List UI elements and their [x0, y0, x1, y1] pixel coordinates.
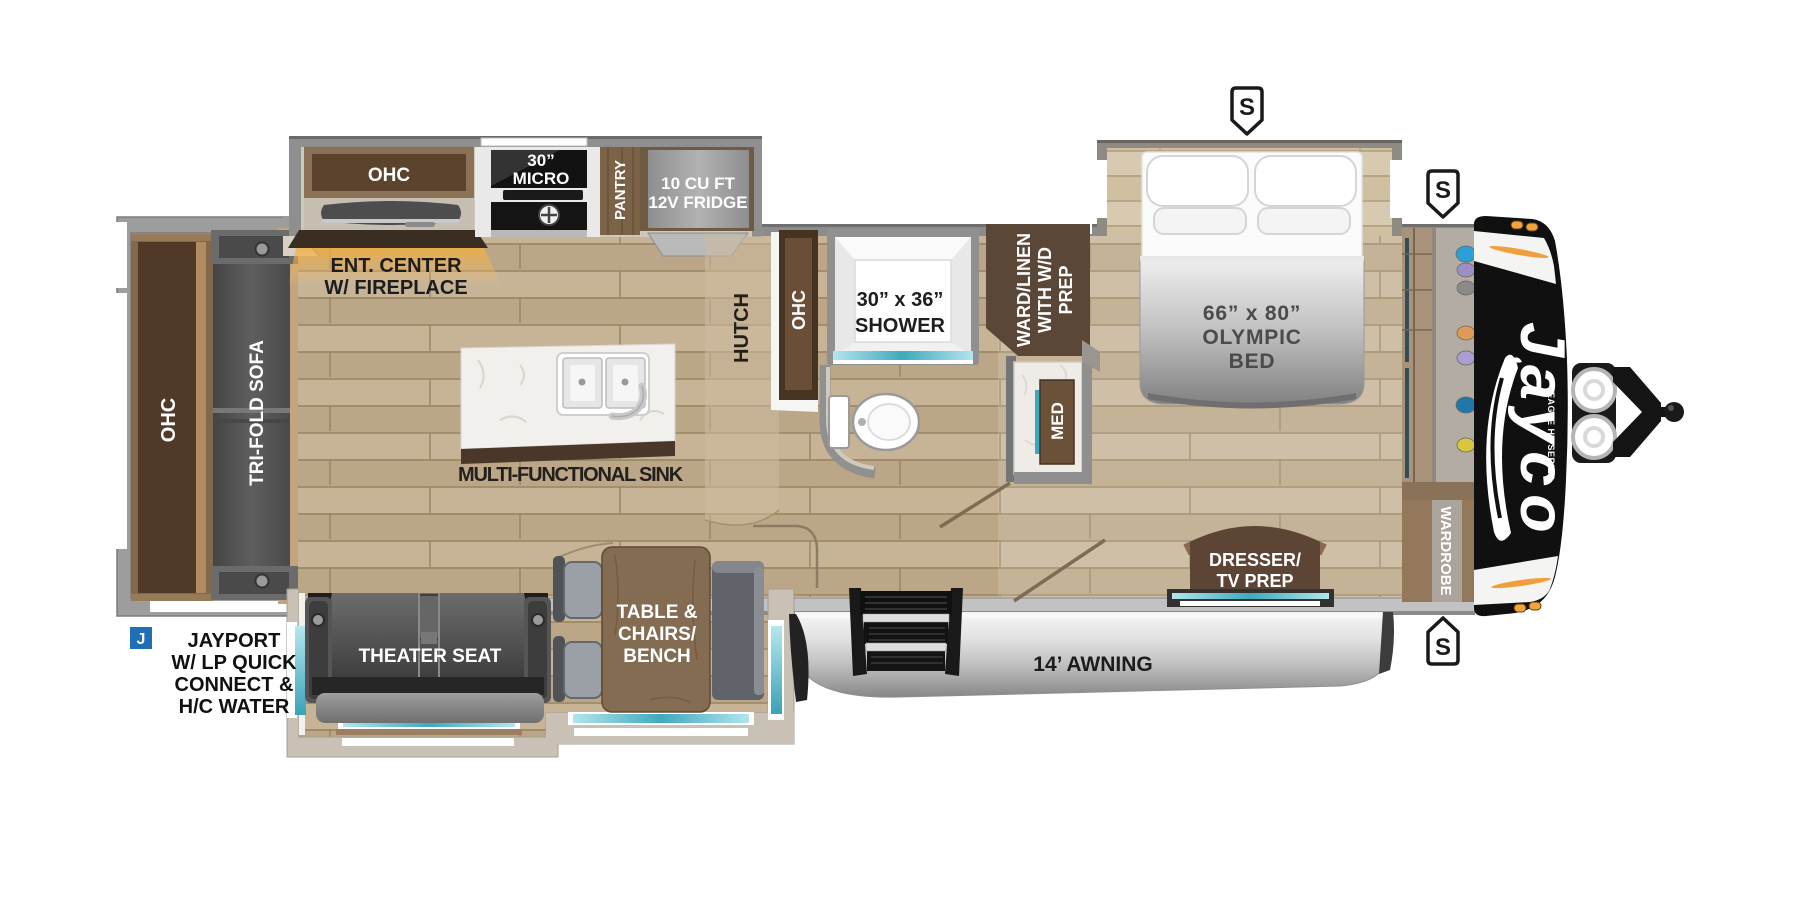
svg-text:30”: 30”	[527, 151, 554, 170]
svg-text:CHAIRS/: CHAIRS/	[618, 624, 697, 645]
svg-text:TV PREP: TV PREP	[1216, 571, 1293, 591]
svg-text:TRI-FOLD SOFA: TRI-FOLD SOFA	[247, 340, 268, 486]
svg-text:OLYMPIC: OLYMPIC	[1202, 326, 1301, 349]
svg-text:12V FRIDGE: 12V FRIDGE	[648, 193, 747, 212]
svg-text:S: S	[1239, 94, 1255, 121]
svg-text:BED: BED	[1229, 350, 1276, 373]
svg-text:OHC: OHC	[789, 290, 809, 330]
svg-text:BENCH: BENCH	[623, 646, 691, 667]
svg-text:TABLE &: TABLE &	[617, 602, 698, 623]
svg-text:EAGLE HT SERIES: EAGLE HT SERIES	[1546, 392, 1556, 481]
svg-text:OHC: OHC	[368, 165, 411, 186]
svg-text:CONNECT &: CONNECT &	[175, 674, 294, 696]
svg-text:WARDROBE: WARDROBE	[1437, 506, 1454, 595]
svg-text:H/C WATER: H/C WATER	[179, 696, 290, 718]
svg-text:WARD/LINEN: WARD/LINEN	[1014, 233, 1034, 347]
svg-text:ENT. CENTER: ENT. CENTER	[330, 255, 462, 277]
svg-text:10 CU FT: 10 CU FT	[661, 174, 735, 193]
svg-text:WITH W/D: WITH W/D	[1035, 247, 1055, 333]
svg-text:S: S	[1435, 634, 1451, 661]
svg-text:Jayco: Jayco	[1507, 322, 1577, 541]
svg-text:JAYPORT: JAYPORT	[188, 630, 281, 652]
svg-text:MICRO: MICRO	[513, 169, 570, 188]
svg-text:SHOWER: SHOWER	[855, 315, 946, 337]
svg-text:THEATER SEAT: THEATER SEAT	[359, 646, 502, 667]
svg-text:PANTRY: PANTRY	[612, 160, 629, 220]
svg-text:HUTCH: HUTCH	[731, 293, 753, 363]
svg-text:MED: MED	[1048, 402, 1067, 440]
svg-text:66” x 80”: 66” x 80”	[1203, 302, 1301, 325]
svg-text:W/ LP QUICK: W/ LP QUICK	[171, 652, 297, 674]
svg-text:MULTI-FUNCTIONAL SINK: MULTI-FUNCTIONAL SINK	[458, 464, 684, 486]
svg-text:J: J	[137, 631, 146, 648]
svg-text:PREP: PREP	[1056, 265, 1076, 314]
svg-text:DRESSER/: DRESSER/	[1209, 550, 1301, 570]
svg-text:OHC: OHC	[158, 398, 180, 442]
svg-text:30” x 36”: 30” x 36”	[857, 289, 944, 311]
svg-text:14’ AWNING: 14’ AWNING	[1033, 653, 1152, 676]
svg-text:W/ FIREPLACE: W/ FIREPLACE	[324, 277, 467, 299]
svg-text:S: S	[1435, 177, 1451, 204]
